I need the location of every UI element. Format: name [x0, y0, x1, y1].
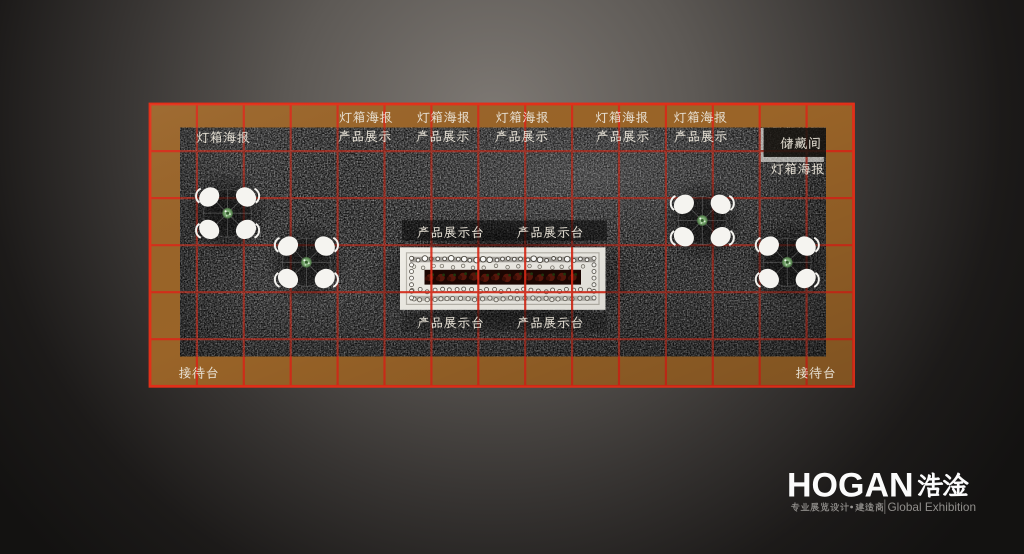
svg-text:Global Exhibition: Global Exhibition	[888, 500, 977, 514]
svg-text:HOGAN: HOGAN	[787, 467, 914, 505]
